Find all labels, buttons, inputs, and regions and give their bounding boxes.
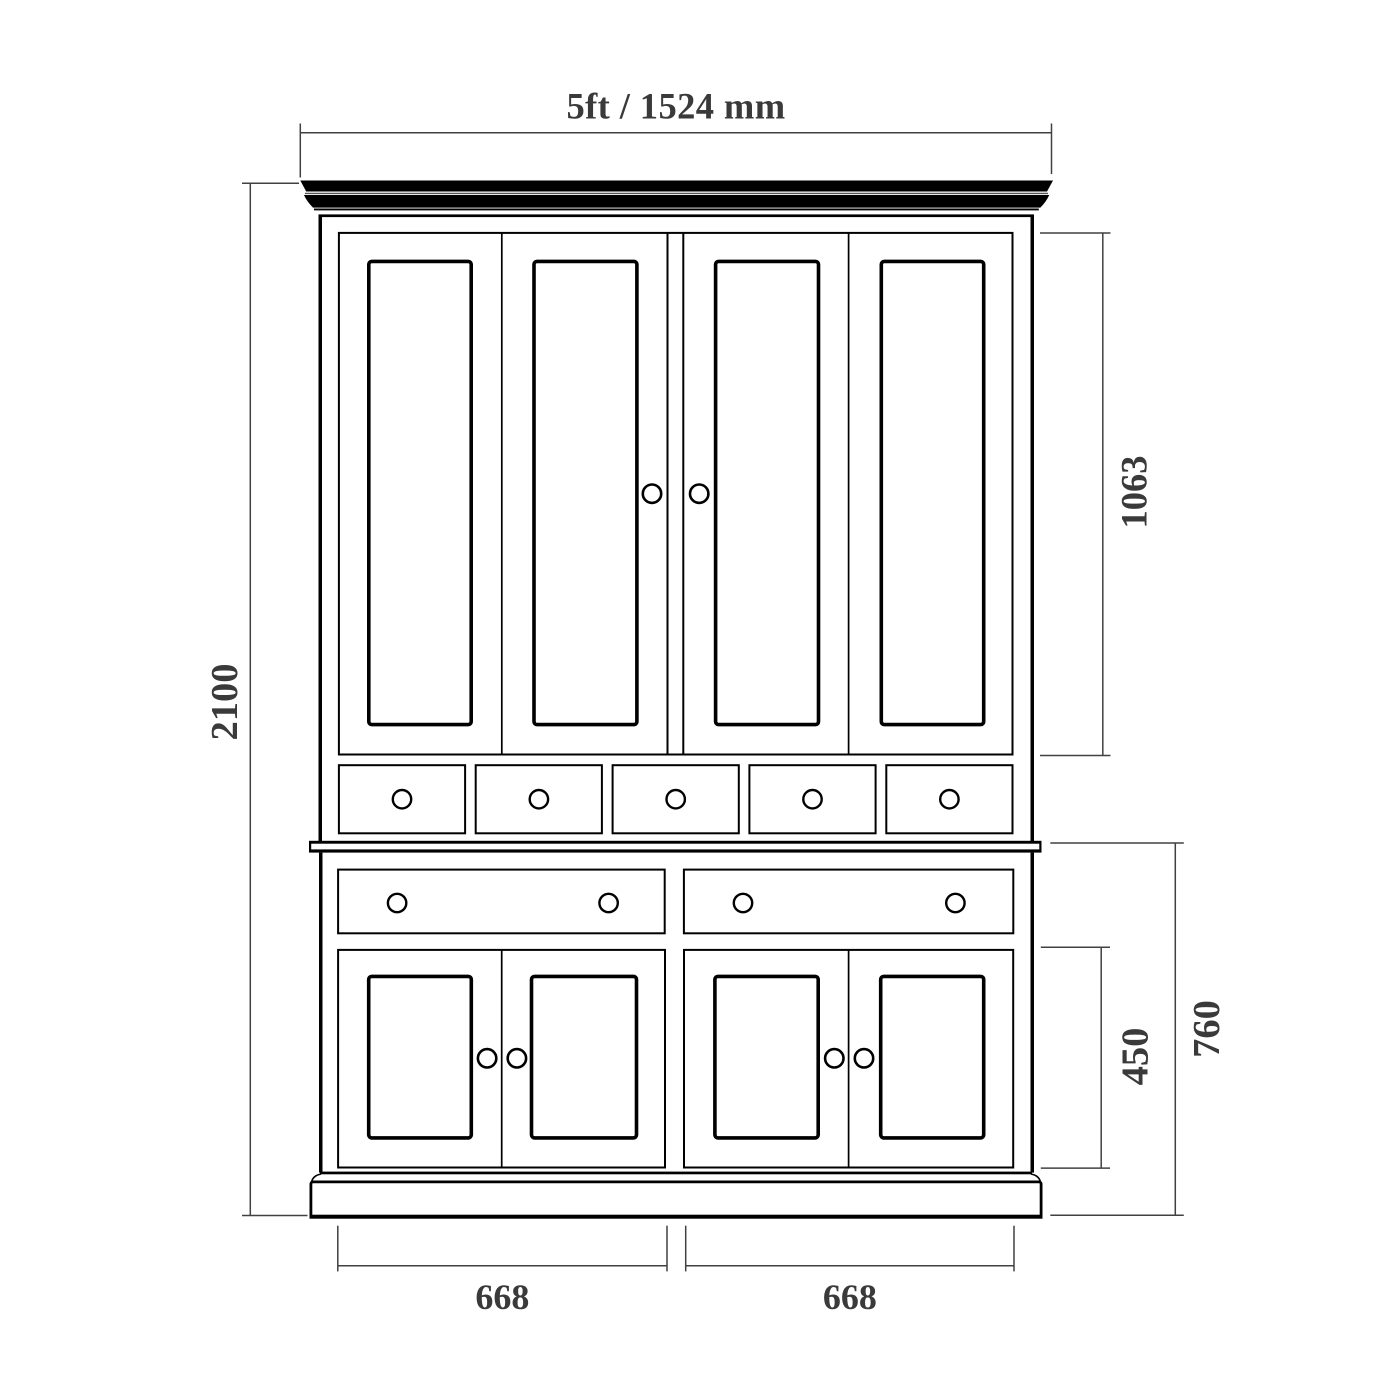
svg-text:5ft / 1524 mm: 5ft / 1524 mm [566,86,785,127]
svg-text:450: 450 [1115,1028,1157,1086]
svg-text:1063: 1063 [1113,456,1154,529]
svg-text:668: 668 [823,1277,877,1317]
svg-text:668: 668 [475,1277,529,1317]
svg-text:2100: 2100 [204,664,246,741]
svg-text:760: 760 [1186,1000,1228,1058]
